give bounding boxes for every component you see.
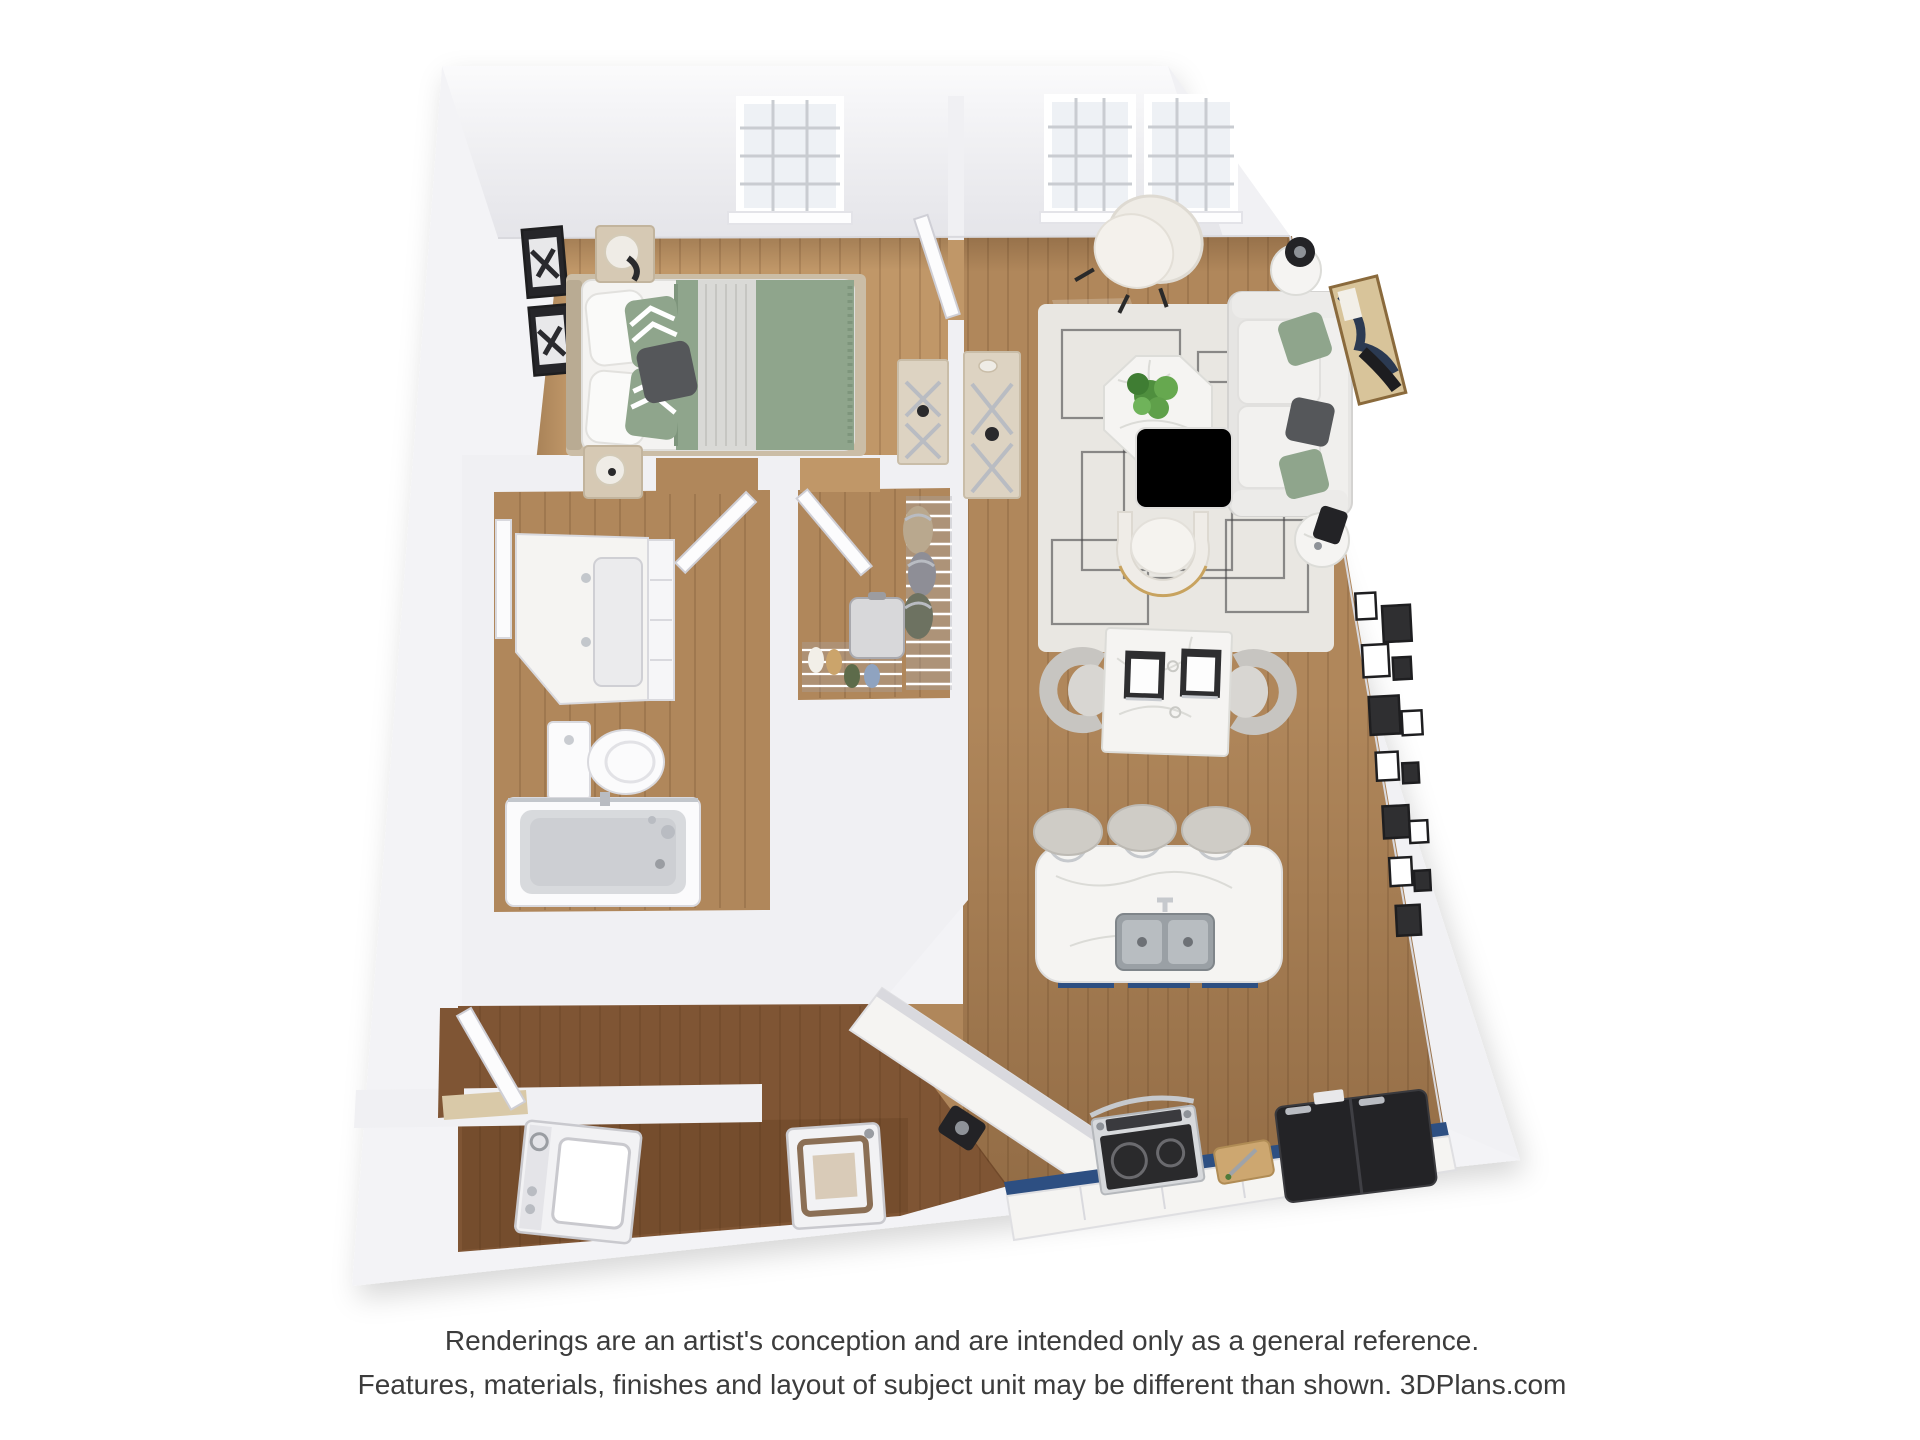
- washer-door: [552, 1138, 630, 1229]
- tub-shower: [506, 792, 700, 906]
- bedroom-dresser: [898, 360, 948, 464]
- sofa-arm: [1232, 292, 1348, 318]
- bathroom-mirror: [496, 520, 511, 638]
- square-dining-table: [1102, 628, 1232, 756]
- walk-in-closet: [797, 458, 952, 700]
- gray-pillow: [1284, 396, 1336, 448]
- dryer: [787, 1123, 886, 1229]
- headboard: [566, 280, 582, 450]
- queen-bed: [566, 274, 866, 456]
- bathroom-vanity: [516, 534, 674, 704]
- suitcase: [850, 598, 904, 658]
- floor-plan-rendering: Renderings are an artist's conception an…: [0, 0, 1920, 1440]
- nightstand-bottom: [584, 446, 642, 498]
- bedroom-window: [728, 100, 852, 224]
- floor-plan-page: Renderings are an artist's conception an…: [0, 0, 1920, 1440]
- bathroom-doorway: [656, 458, 758, 494]
- nightstand-top: [596, 226, 654, 282]
- laundry-wall: [354, 1084, 762, 1128]
- disclaimer: Renderings are an artist's conception an…: [358, 1325, 1567, 1400]
- barrel-chair: [1117, 512, 1209, 596]
- kitchen-island: [1034, 805, 1282, 988]
- closet-doorway: [800, 458, 880, 492]
- bathroom: [494, 458, 770, 912]
- place-setting: [1124, 651, 1166, 700]
- disclaimer-line-2: Features, materials, finishes and layout…: [358, 1369, 1567, 1400]
- place-setting: [1180, 648, 1222, 697]
- console-x-hardware: [964, 352, 1020, 498]
- gray-lumbar-pillow: [635, 339, 699, 405]
- disclaimer-line-1: Renderings are an artist's conception an…: [445, 1325, 1479, 1356]
- chaise: [1136, 428, 1232, 508]
- washer: [515, 1120, 642, 1244]
